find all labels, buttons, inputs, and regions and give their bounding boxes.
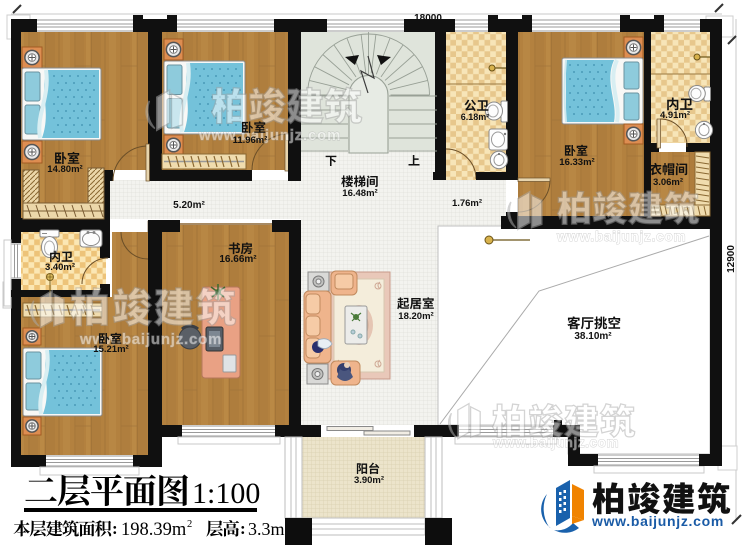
svg-text:18.20m²: 18.20m²	[398, 311, 433, 322]
svg-text:www.baijunjz.com: www.baijunjz.com	[591, 513, 724, 529]
svg-text:www.baijunjz.com: www.baijunjz.com	[198, 127, 341, 144]
svg-text:3.40m²: 3.40m²	[45, 262, 75, 273]
svg-text:14.80m²: 14.80m²	[47, 164, 82, 175]
svg-text:5.20m²: 5.20m²	[173, 200, 205, 211]
svg-text:4.91m²: 4.91m²	[660, 110, 690, 121]
svg-text:16.33m²: 16.33m²	[559, 157, 594, 168]
svg-text:16.48m²: 16.48m²	[342, 188, 377, 199]
svg-text:1:100: 1:100	[192, 477, 260, 510]
svg-text:3.90m²: 3.90m²	[354, 475, 384, 486]
svg-text:3.06m²: 3.06m²	[653, 177, 683, 188]
svg-text:12900: 12900	[726, 245, 737, 273]
svg-text::: :	[112, 519, 118, 538]
svg-text:15.21m²: 15.21m²	[93, 344, 128, 355]
svg-text:3.3m: 3.3m	[248, 519, 285, 539]
svg-text:www.baijunjz.com: www.baijunjz.com	[556, 229, 686, 244]
svg-text:16.66m²: 16.66m²	[219, 254, 257, 265]
svg-text:198.39m: 198.39m	[121, 520, 187, 540]
svg-text:1.76m²: 1.76m²	[452, 198, 482, 209]
svg-text:6.18m²: 6.18m²	[461, 112, 490, 122]
svg-text:38.10m²: 38.10m²	[574, 331, 612, 342]
svg-text:2: 2	[187, 519, 192, 530]
svg-text::: :	[240, 519, 246, 538]
svg-text:www.baijunjz.com: www.baijunjz.com	[492, 435, 619, 450]
svg-text:11.96m²: 11.96m²	[233, 135, 268, 146]
